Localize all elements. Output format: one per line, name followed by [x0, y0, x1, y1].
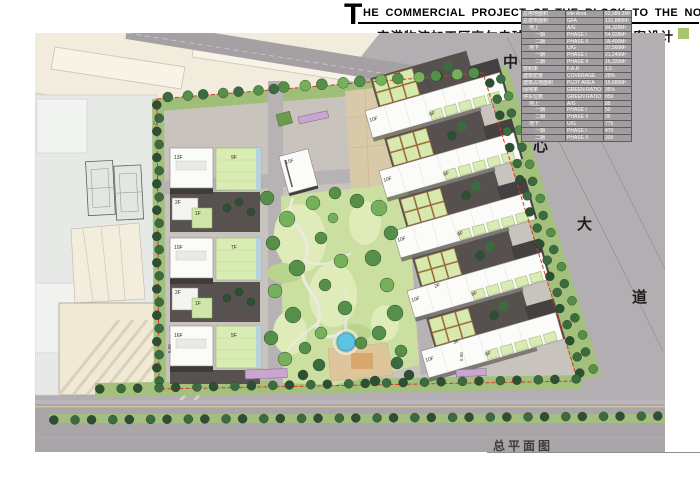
- table-cell: U/G: [566, 121, 604, 128]
- table-cell: 1.5: [604, 66, 632, 73]
- table-row: 总建筑面积GFA131,888M²: [522, 18, 632, 25]
- table-row: 地上A/G94,328M²: [522, 25, 632, 32]
- table-cell: PHASE I: [566, 32, 604, 39]
- table-cell: 地下: [522, 45, 566, 52]
- table-cell: 二期: [522, 135, 566, 142]
- table-row: 地下U/G775: [522, 121, 632, 128]
- table-cell: 62,989.3M²: [604, 11, 632, 18]
- table-row: 容积率F.A.R1.5: [522, 66, 632, 73]
- table-cell: 地下: [522, 121, 566, 128]
- table-row: 二期PHASE II35: [522, 114, 632, 121]
- table-cell: 建筑占地面积: [522, 80, 566, 87]
- table-cell: 850: [604, 94, 632, 101]
- table-row: 一期PHASE I54,928M²: [522, 32, 632, 39]
- table-cell: 94,328M²: [604, 25, 632, 32]
- table-cell: GREEN RATIO: [566, 94, 604, 101]
- table-cell: GFA: [566, 18, 604, 25]
- table-cell: 15,680M²: [604, 80, 632, 87]
- table-cell: 35: [604, 114, 632, 121]
- presentation-board: { "header": { "title_initial": "T", "tit…: [0, 0, 700, 495]
- table-cell: 一期: [522, 52, 566, 59]
- table-cell: 二期: [522, 59, 566, 66]
- table-cell: 775: [604, 121, 632, 128]
- table-cell: 39,400M²: [604, 39, 632, 46]
- table-cell: 50: [604, 107, 632, 114]
- table-cell: 37,560M²: [604, 45, 632, 52]
- table-cell: PHASE II: [566, 135, 604, 142]
- table-cell: PLOT AREA: [566, 80, 604, 87]
- table-cell: 一期: [522, 107, 566, 114]
- table-cell: 二期: [522, 39, 566, 46]
- stats-table: 总用地面积site Area62,989.3M²总建筑面积GFA131,888M…: [521, 10, 632, 142]
- table-cell: 停车位数: [522, 94, 566, 101]
- table-cell: 21,240M²: [604, 52, 632, 59]
- table-row: 地上A/G85: [522, 101, 632, 108]
- table-cell: 35%: [604, 87, 632, 94]
- table-cell: PHASE II: [566, 59, 604, 66]
- plan-title-underline: [487, 452, 700, 453]
- table-cell: F.A.R: [566, 66, 604, 73]
- table-cell: A/G: [566, 25, 604, 32]
- table-cell: PHASE I: [566, 52, 604, 59]
- table-cell: 305: [604, 135, 632, 142]
- table-cell: COVERAGE: [566, 73, 604, 80]
- table-row: 一期PHASE I470: [522, 128, 632, 135]
- table-cell: 131,888M²: [604, 18, 632, 25]
- table-cell: A/G: [566, 101, 604, 108]
- table-cell: 470: [604, 128, 632, 135]
- table-row: 绿地率GREEN RATIO35%: [522, 87, 632, 94]
- table-row: 建筑密度COVERAGE25%: [522, 73, 632, 80]
- table-cell: 绿地率: [522, 87, 566, 94]
- table-row: 二期PHASE II16,320M²: [522, 59, 632, 66]
- table-cell: 二期: [522, 114, 566, 121]
- table-cell: 总建筑面积: [522, 18, 566, 25]
- table-row: 地下U/G37,560M²: [522, 45, 632, 52]
- title-drop-cap: T: [344, 0, 362, 32]
- table-cell: site Area: [566, 11, 604, 18]
- bottom-road: [35, 400, 665, 452]
- table-cell: 16,320M²: [604, 59, 632, 66]
- table-cell: 容积率: [522, 66, 566, 73]
- table-cell: U/G: [566, 45, 604, 52]
- accent-square: [678, 28, 689, 39]
- table-row: 一期PHASE I21,240M²: [522, 52, 632, 59]
- table-cell: PHASE II: [566, 114, 604, 121]
- table-cell: 总用地面积: [522, 11, 566, 18]
- table-cell: 54,928M²: [604, 32, 632, 39]
- table-cell: PHASE II: [566, 39, 604, 46]
- table-row: 总用地面积site Area62,989.3M²: [522, 11, 632, 18]
- table-cell: 地上: [522, 101, 566, 108]
- table-cell: PHASE I: [566, 107, 604, 114]
- table-cell: GREEN RATIO: [566, 87, 604, 94]
- table-cell: PHASE I: [566, 128, 604, 135]
- table-row: 二期PHASE II39,400M²: [522, 39, 632, 46]
- table-row: 停车位数GREEN RATIO850: [522, 94, 632, 101]
- table-cell: 85: [604, 101, 632, 108]
- table-row: 一期PHASE I50: [522, 107, 632, 114]
- table-cell: 一期: [522, 128, 566, 135]
- table-row: 建筑占地面积PLOT AREA15,680M²: [522, 80, 632, 87]
- table-cell: 地上: [522, 25, 566, 32]
- table-row: 二期PHASE II305: [522, 135, 632, 142]
- pond: [337, 333, 355, 351]
- table-cell: 建筑密度: [522, 73, 566, 80]
- table-cell: 一期: [522, 32, 566, 39]
- table-cell: 25%: [604, 73, 632, 80]
